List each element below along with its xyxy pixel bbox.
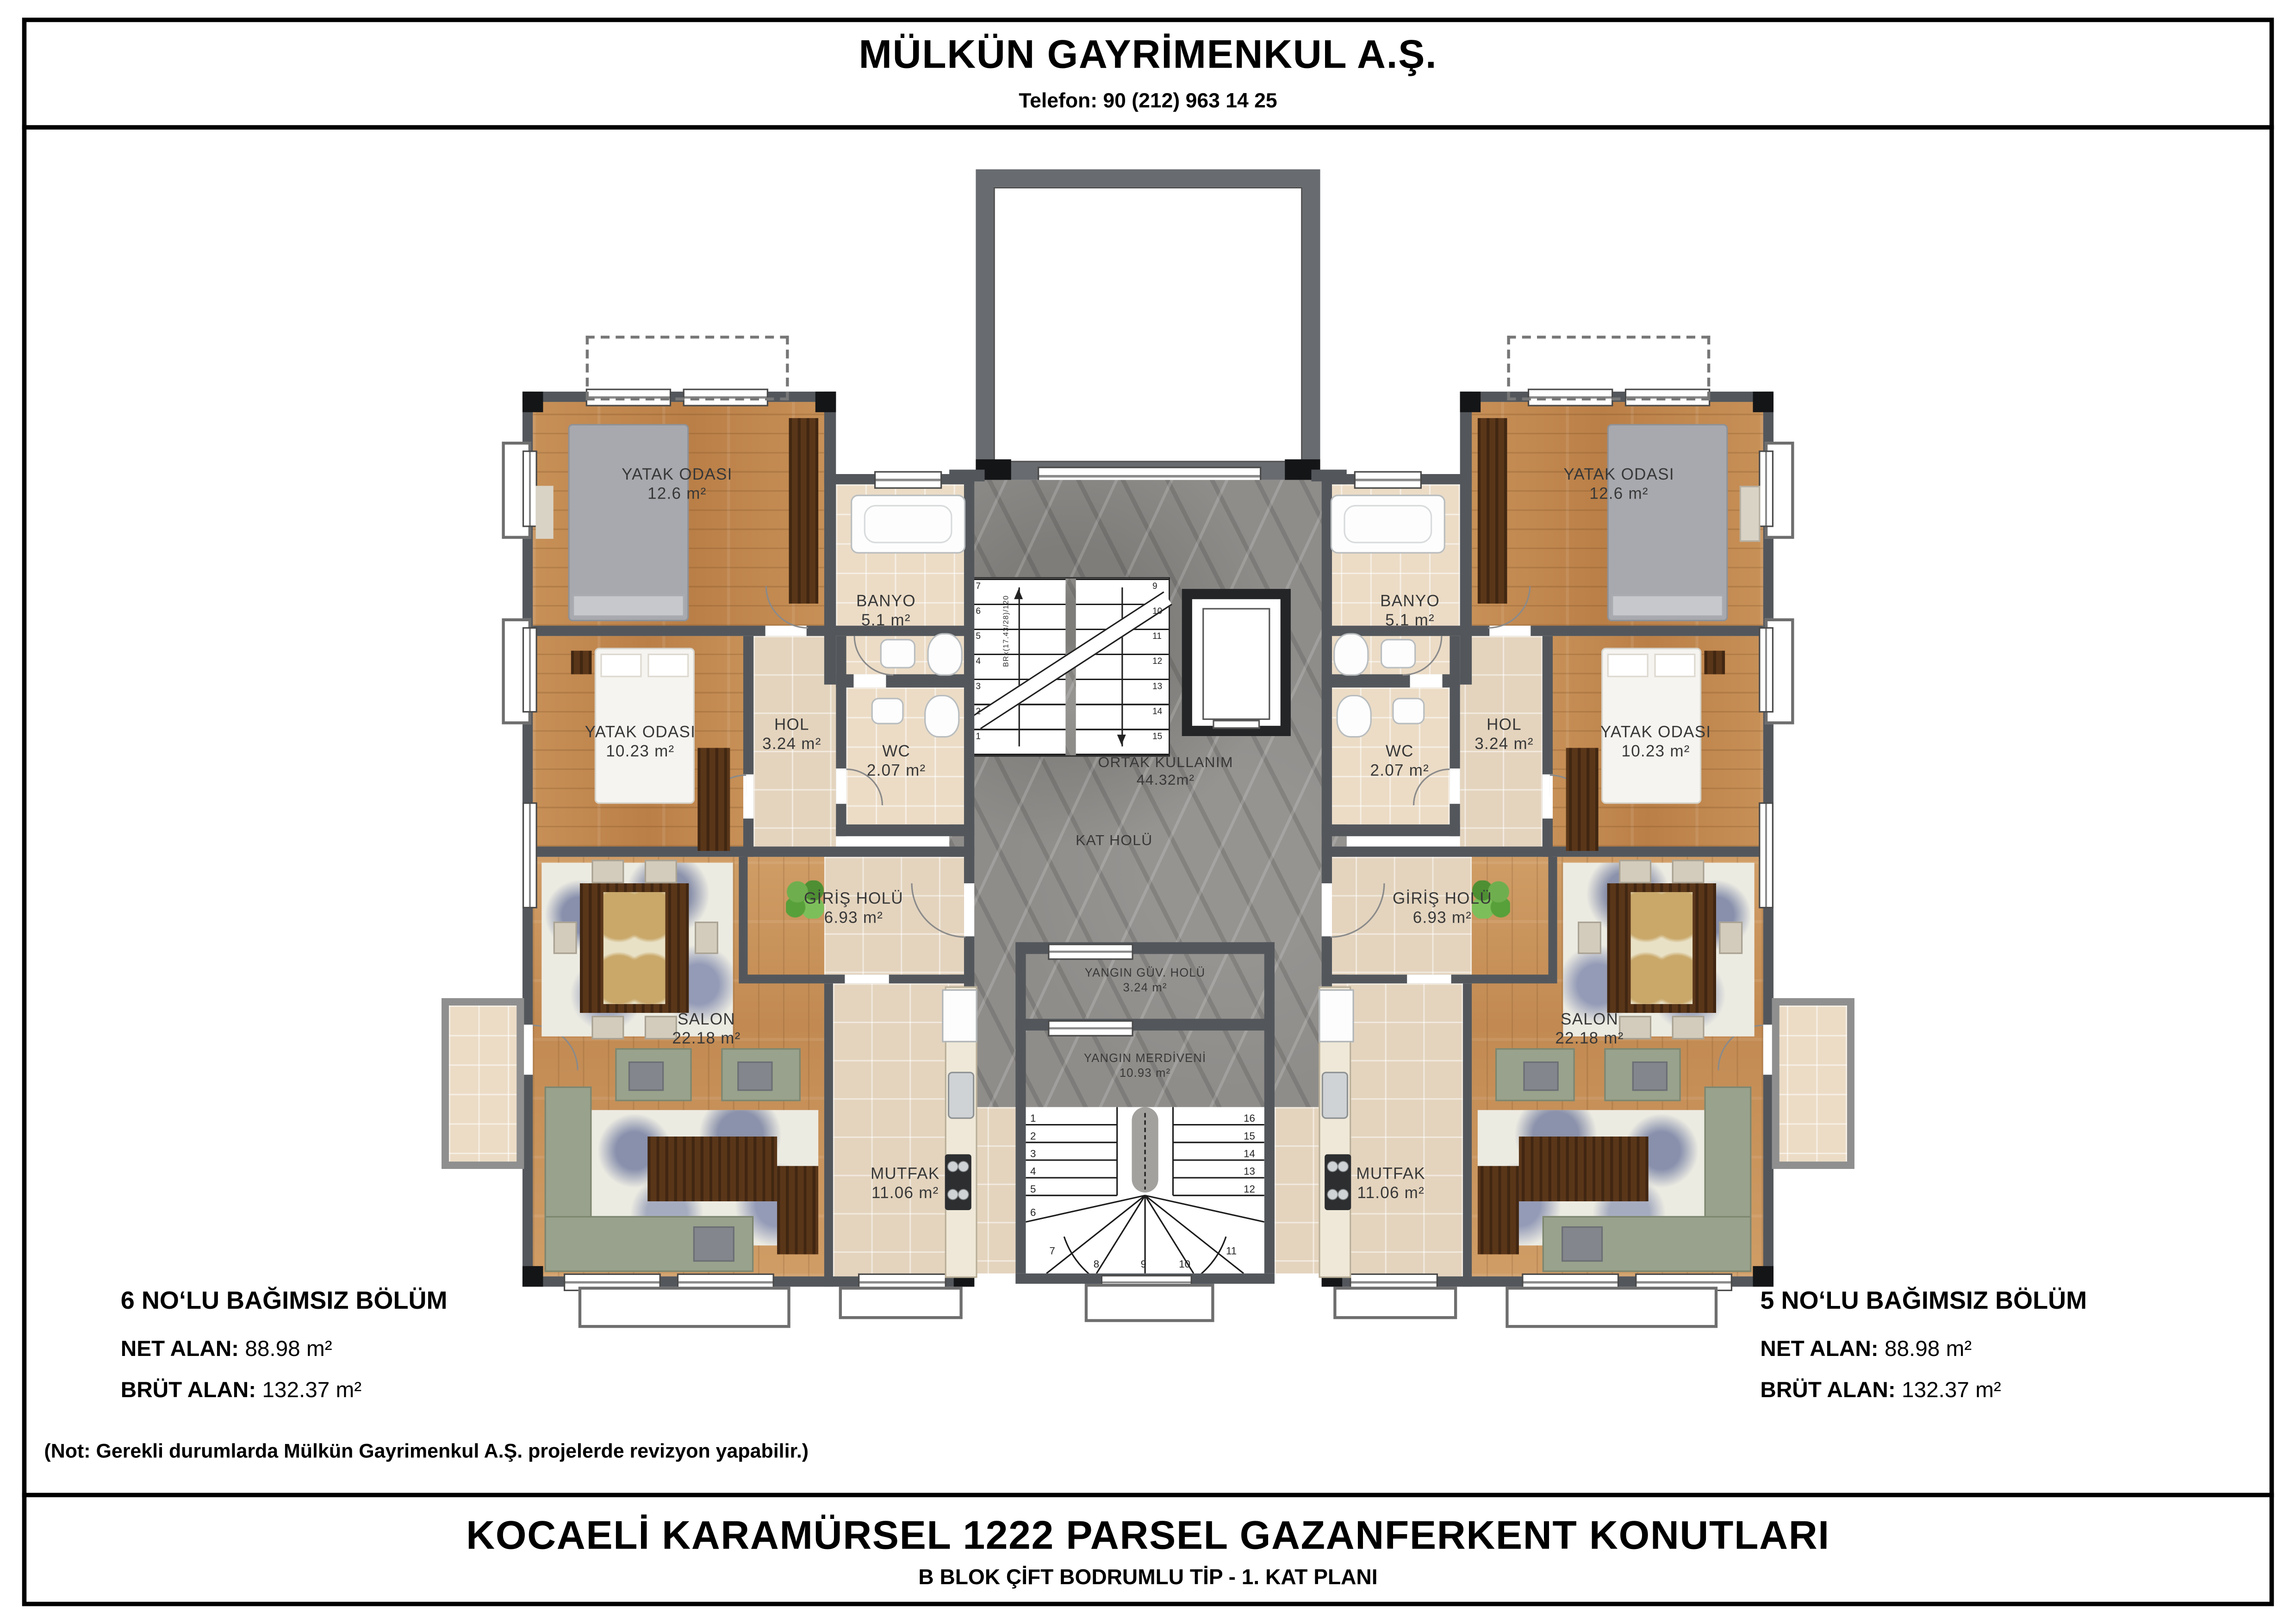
room-label-bedroom2: YATAK ODASI10.23 m² bbox=[1600, 724, 1711, 763]
room-label-giris: GİRİŞ HOLÜ6.93 m² bbox=[804, 890, 903, 929]
door-gap bbox=[523, 1024, 533, 1074]
window-sill bbox=[1506, 1287, 1717, 1328]
dining-table-icon bbox=[580, 883, 689, 1013]
window bbox=[1048, 1020, 1133, 1037]
window bbox=[523, 450, 537, 527]
footer-divider bbox=[22, 1493, 2274, 1498]
door-gap bbox=[1450, 768, 1460, 804]
fridge-icon bbox=[1319, 989, 1354, 1042]
room-label-salon: SALON22.18 m² bbox=[1555, 1011, 1624, 1050]
svg-text:9: 9 bbox=[1141, 1258, 1146, 1270]
room-label-fire-hall: YANGIN GÜV. HOLÜ3.24 m² bbox=[1085, 966, 1206, 994]
chair-icon bbox=[1672, 860, 1705, 883]
svg-text:8: 8 bbox=[1094, 1258, 1099, 1270]
sink-icon bbox=[880, 639, 915, 668]
brut-alan-label: BRÜT ALAN: bbox=[121, 1378, 256, 1403]
kitchen-sink-icon bbox=[948, 1072, 974, 1119]
wall bbox=[1264, 942, 1275, 1274]
svg-text:1: 1 bbox=[1030, 1112, 1036, 1124]
wall bbox=[815, 392, 836, 412]
svg-text:5: 5 bbox=[1030, 1183, 1036, 1195]
nightstand-icon bbox=[571, 651, 592, 675]
wall bbox=[824, 392, 836, 685]
wall bbox=[1753, 1266, 1773, 1287]
door-gap bbox=[836, 768, 846, 804]
balcony-outline bbox=[586, 336, 789, 400]
tv-unit-icon bbox=[777, 1166, 818, 1255]
room-label-bedroom2: YATAK ODASI10.23 m² bbox=[585, 724, 696, 763]
terrace bbox=[442, 998, 524, 1169]
stove-icon bbox=[1325, 1154, 1351, 1210]
nightstand-icon bbox=[1705, 651, 1725, 675]
window bbox=[874, 471, 942, 489]
bed-pillow-icon bbox=[1612, 595, 1724, 617]
wall bbox=[836, 824, 974, 836]
wall bbox=[824, 983, 833, 1287]
bed-pillow-icon bbox=[1654, 654, 1695, 677]
chair-icon bbox=[695, 922, 718, 954]
main-staircase-icon: 7654321 9101112131415 BRx(17.43/28)/120 bbox=[971, 577, 1170, 757]
chair-icon bbox=[1719, 922, 1742, 954]
dining-table-icon bbox=[1607, 883, 1716, 1013]
apartment-5: YATAK ODASI12.6 m² BANYO5.1 m² YATAK ODA… bbox=[1322, 333, 1858, 1332]
bench-icon bbox=[536, 486, 554, 538]
svg-text:3: 3 bbox=[1030, 1148, 1036, 1160]
svg-text:6: 6 bbox=[1030, 1207, 1036, 1218]
room-label-wc: WC2.07 m² bbox=[867, 743, 926, 782]
bed-icon bbox=[1607, 424, 1728, 621]
svg-text:16: 16 bbox=[1244, 1112, 1255, 1124]
net-alan-label: NET ALAN: bbox=[121, 1337, 239, 1362]
door-gap bbox=[845, 974, 889, 983]
net-alan-value: 88.98 m² bbox=[245, 1337, 332, 1362]
door-gap bbox=[964, 883, 974, 936]
window bbox=[1354, 471, 1422, 489]
bed-pillow-icon bbox=[1607, 654, 1649, 677]
chair-icon bbox=[1619, 860, 1651, 883]
unit-title: 6 NO‘LU BAĞIMSIZ BÖLÜM bbox=[121, 1287, 739, 1316]
door-gap bbox=[853, 674, 886, 687]
project-title: KOCAELİ KARAMÜRSEL 1222 PARSEL GAZANFERK… bbox=[0, 1513, 2296, 1559]
toilet-icon bbox=[924, 695, 959, 737]
room-label-wc: WC2.07 m² bbox=[1370, 743, 1430, 782]
light-shaft bbox=[976, 169, 1320, 480]
svg-text:11: 11 bbox=[1226, 1245, 1237, 1256]
company-phone: Telefon: 90 (212) 963 14 25 bbox=[0, 88, 2296, 112]
wardrobe-icon bbox=[789, 418, 819, 604]
wall bbox=[1450, 636, 1460, 836]
header-divider bbox=[22, 125, 2274, 130]
window bbox=[1759, 450, 1773, 527]
terrace bbox=[1772, 998, 1854, 1169]
kitchen-sink-icon bbox=[1322, 1072, 1348, 1119]
wall bbox=[533, 847, 974, 857]
balcony-outline bbox=[1507, 336, 1710, 400]
armchair-icon bbox=[615, 1048, 691, 1101]
svg-text:12: 12 bbox=[1244, 1183, 1255, 1195]
net-alan-label: NET ALAN: bbox=[1760, 1337, 1878, 1362]
wall bbox=[1753, 392, 1773, 412]
wall bbox=[1322, 847, 1763, 857]
wall bbox=[739, 857, 747, 983]
toilet-icon bbox=[927, 633, 962, 675]
armchair-icon bbox=[1495, 1048, 1575, 1101]
common-hall-floor bbox=[949, 480, 1347, 1107]
window bbox=[523, 802, 537, 908]
svg-text:7: 7 bbox=[1049, 1245, 1055, 1256]
chair-icon bbox=[591, 860, 624, 883]
net-alan-value: 88.98 m² bbox=[1885, 1337, 1972, 1362]
svg-text:10: 10 bbox=[1179, 1258, 1190, 1270]
coffee-table-icon bbox=[1519, 1137, 1649, 1201]
fire-exit-landing bbox=[1085, 1284, 1214, 1322]
wall bbox=[743, 636, 753, 857]
window bbox=[1048, 943, 1133, 960]
fire-staircase-icon: 123456 7891011 1615141312 bbox=[1026, 1107, 1264, 1273]
toilet-icon bbox=[1337, 695, 1372, 737]
armchair-icon bbox=[721, 1048, 801, 1101]
wall bbox=[523, 1266, 543, 1287]
bed-pillow-icon bbox=[572, 595, 684, 617]
room-label-giris: GİRİŞ HOLÜ6.93 m² bbox=[1393, 890, 1492, 929]
door-gap bbox=[1410, 674, 1443, 687]
toilet-icon bbox=[1333, 633, 1369, 675]
wall bbox=[523, 392, 543, 412]
brut-alan-value: 132.37 m² bbox=[262, 1378, 361, 1403]
chair-icon bbox=[1672, 1016, 1705, 1039]
unit-info-6: 6 NO‘LU BAĞIMSIZ BÖLÜM NET ALAN: 88.98 m… bbox=[121, 1287, 739, 1419]
stove-icon bbox=[945, 1154, 971, 1210]
room-label-common: ORTAK KULLANIM44.32m² bbox=[1098, 755, 1233, 790]
floor-plan-sheet: MÜLKÜN GAYRİMENKUL A.Ş. Telefon: 90 (212… bbox=[0, 0, 2296, 1624]
room-label-salon: SALON22.18 m² bbox=[672, 1011, 740, 1050]
tv-unit-icon bbox=[1478, 1166, 1519, 1255]
bathtub-icon bbox=[851, 495, 965, 554]
company-title: MÜLKÜN GAYRİMENKUL A.Ş. bbox=[0, 32, 2296, 78]
revision-note: (Not: Gerekli durumlarda Mülkün Gayrimen… bbox=[44, 1440, 809, 1462]
wall bbox=[1543, 636, 1553, 857]
brut-alan-label: BRÜT ALAN: bbox=[1760, 1378, 1895, 1403]
room-label-banyo: BANYO5.1 m² bbox=[856, 593, 916, 632]
bed-pillow-icon bbox=[600, 654, 641, 677]
svg-text:2: 2 bbox=[1030, 1130, 1036, 1142]
coffee-table-icon bbox=[647, 1137, 777, 1201]
room-label-kat-holu: KAT HOLÜ bbox=[1076, 833, 1152, 851]
room-label-hol: HOL3.24 m² bbox=[762, 717, 821, 756]
room-label-bedroom1: YATAK ODASI12.6 m² bbox=[622, 466, 733, 505]
apartment-6: YATAK ODASI12.6 m² BANYO5.1 m² YATAK ODA… bbox=[439, 333, 975, 1332]
sink-icon bbox=[871, 698, 904, 724]
room-label-mutfak: MUTFAK11.06 m² bbox=[871, 1166, 940, 1205]
room-label-mutfak: MUTFAK11.06 m² bbox=[1356, 1166, 1425, 1205]
plan-subtitle: B BLOK ÇİFT BODRUMLU TİP - 1. KAT PLANI bbox=[0, 1567, 2296, 1590]
wall bbox=[1548, 857, 1557, 983]
chair-icon bbox=[591, 1016, 624, 1039]
bed-pillow-icon bbox=[647, 654, 689, 677]
brut-alan-value: 132.37 m² bbox=[1902, 1378, 2001, 1403]
svg-text:14: 14 bbox=[1244, 1148, 1255, 1160]
sink-icon bbox=[1392, 698, 1425, 724]
wall bbox=[1322, 824, 1460, 836]
wall bbox=[1460, 392, 1481, 412]
room-label-banyo: BANYO5.1 m² bbox=[1380, 593, 1440, 632]
wall bbox=[836, 636, 846, 836]
wall bbox=[1463, 983, 1472, 1287]
window-sill bbox=[839, 1287, 963, 1319]
wardrobe-icon bbox=[1478, 418, 1507, 604]
chair-icon bbox=[645, 860, 677, 883]
room-label-fire-stair: YANGIN MERDİVENİ10.93 m² bbox=[1084, 1052, 1206, 1080]
svg-text:4: 4 bbox=[1030, 1166, 1036, 1177]
elevator-icon bbox=[1182, 589, 1291, 736]
window-sill bbox=[1333, 1287, 1457, 1319]
chair-icon bbox=[1578, 922, 1601, 954]
sink-icon bbox=[1381, 639, 1416, 668]
chair-icon bbox=[554, 922, 577, 954]
fridge-icon bbox=[942, 989, 977, 1042]
window bbox=[1759, 627, 1773, 712]
wall bbox=[1460, 392, 1472, 685]
room-label-hol: HOL3.24 m² bbox=[1475, 717, 1534, 756]
sofa-icon bbox=[1543, 1216, 1752, 1272]
window bbox=[1759, 802, 1773, 908]
sofa-icon bbox=[545, 1216, 754, 1272]
wall bbox=[1015, 942, 1026, 1274]
unit-title: 5 NO‘LU BAĞIMSIZ BÖLÜM bbox=[1760, 1287, 2296, 1316]
window bbox=[523, 627, 537, 712]
svg-text:13: 13 bbox=[1244, 1166, 1255, 1177]
wardrobe-icon bbox=[697, 748, 730, 851]
wardrobe-icon bbox=[1566, 748, 1599, 851]
room-label-bedroom1: YATAK ODASI12.6 m² bbox=[1563, 466, 1674, 505]
unit-info-5: 5 NO‘LU BAĞIMSIZ BÖLÜM NET ALAN: 88.98 m… bbox=[1760, 1287, 2296, 1419]
bed-icon bbox=[568, 424, 689, 621]
bathtub-icon bbox=[1331, 495, 1445, 554]
svg-text:15: 15 bbox=[1244, 1130, 1255, 1142]
door-gap bbox=[1407, 974, 1451, 983]
stair-annotation: BRx(17.43/28)/120 bbox=[1002, 595, 1011, 667]
bench-icon bbox=[1740, 486, 1761, 542]
armchair-icon bbox=[1604, 1048, 1680, 1101]
